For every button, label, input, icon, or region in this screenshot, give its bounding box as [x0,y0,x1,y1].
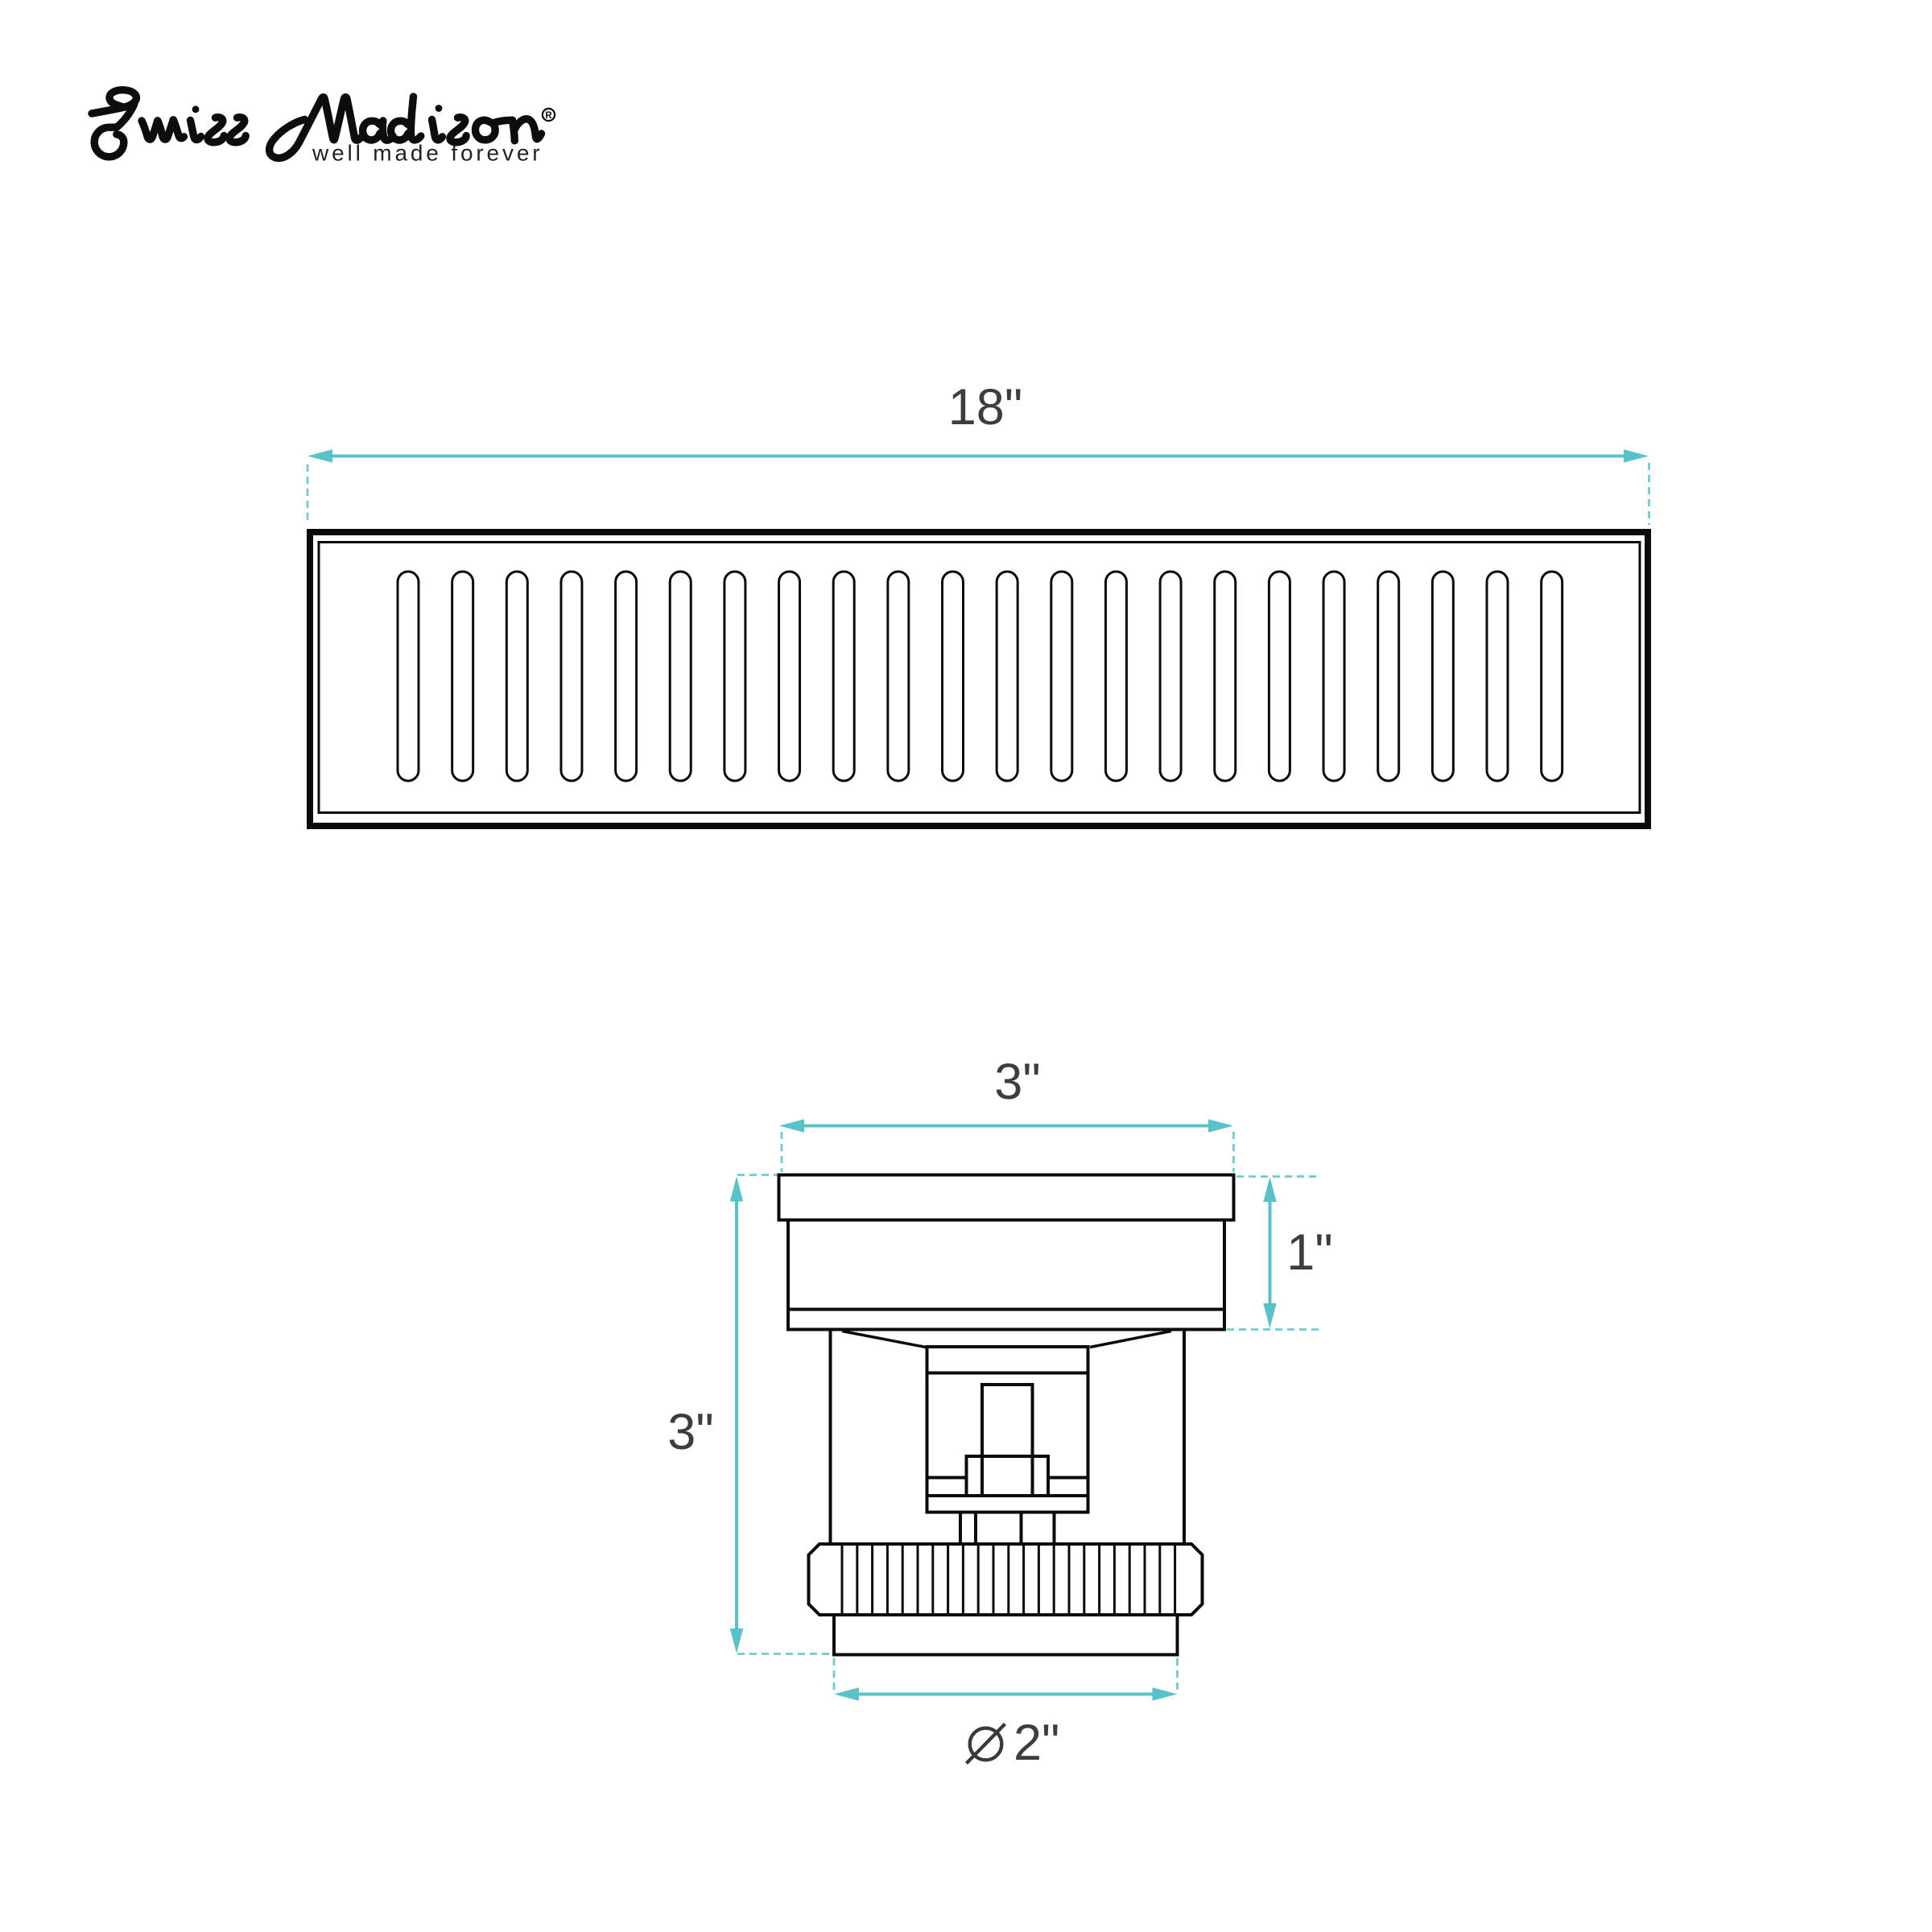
svg-text:3": 3" [994,1054,1040,1110]
svg-text:2": 2" [1013,1715,1059,1771]
svg-text:18": 18" [948,379,1022,436]
svg-text:3": 3" [667,1404,713,1460]
svg-text:1": 1" [1286,1224,1332,1281]
svg-text:R: R [545,111,552,121]
svg-text:well made forever: well made forever [312,141,543,166]
